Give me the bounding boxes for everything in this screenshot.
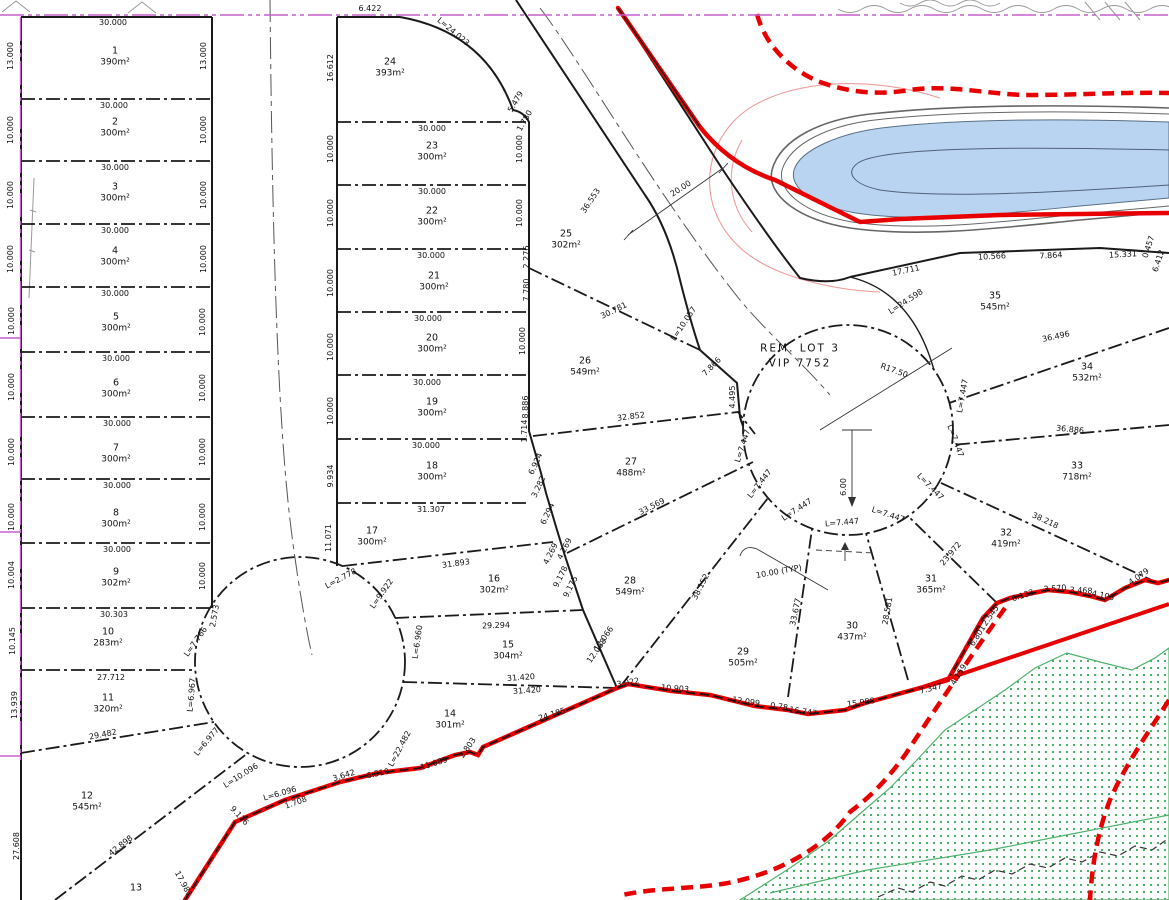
- survey-plan-canvas: 30.0006.422L=24.02316.6125.4791.7802.276…: [0, 0, 1169, 900]
- rem-lot-line1: REM. LOT 3: [760, 341, 840, 356]
- left-lot-block: [21, 17, 248, 900]
- rem-lot-label: REM. LOT 3 VIP 7752: [760, 341, 840, 370]
- dimension-lines: [624, 163, 952, 590]
- rem-lot-line2: VIP 7752: [760, 356, 840, 371]
- middle-lot-block: [337, 17, 617, 688]
- pond: [710, 84, 1169, 292]
- survey-marker-icon: [2, 1, 156, 298]
- east-lot-lines: [529, 268, 1169, 697]
- lot35-north-boundary: [850, 248, 1169, 277]
- cul-de-sac-west: [195, 557, 405, 767]
- scrub-symbols: [838, 0, 1169, 20]
- vegetation-area: [740, 648, 1169, 900]
- road-centerline: [540, 8, 830, 395]
- plan-drawing: [0, 0, 1169, 900]
- dashed-boundary-north: [757, 14, 1169, 95]
